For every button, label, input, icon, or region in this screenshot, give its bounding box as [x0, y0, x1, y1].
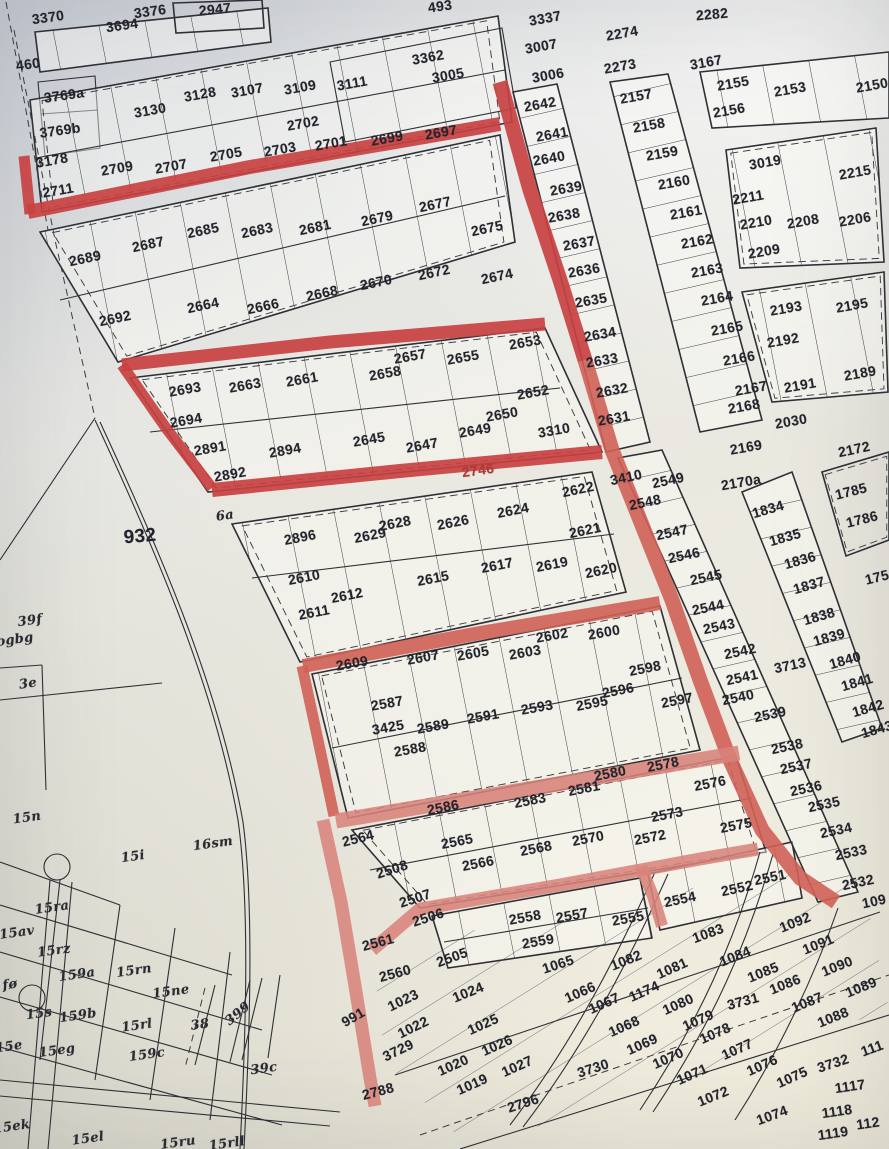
parcel-label-1839: 1839 — [811, 625, 847, 649]
parcel-label-1119: 1119 — [817, 1123, 850, 1143]
parcel-label-2636: 2636 — [567, 259, 602, 280]
parcel-label-2170a: 2170a — [720, 471, 763, 494]
parcel-label-2030: 2030 — [774, 410, 809, 431]
parcel-label-3130: 3130 — [133, 99, 168, 120]
parcel-label-2172: 2172 — [837, 438, 872, 460]
parcel-label-2505: 2505 — [434, 944, 470, 970]
parcel-label-2603: 2603 — [508, 641, 543, 662]
parcel-label-2639: 2639 — [549, 177, 584, 198]
parcel-label-2588: 2588 — [393, 738, 428, 759]
parcel-label-2615: 2615 — [416, 567, 451, 589]
parcel-label-3425: 3425 — [371, 716, 406, 737]
parcel-label-3007: 3007 — [524, 35, 559, 56]
parcel-label-2549: 2549 — [651, 469, 686, 491]
parcel-label-1077: 1077 — [719, 1035, 755, 1063]
parcel-label-1835: 1835 — [767, 525, 803, 549]
parcel-label-2557: 2557 — [555, 904, 590, 925]
parcel-label-1089: 1089 — [843, 974, 879, 1001]
parcel-label-1836: 1836 — [782, 548, 818, 572]
parcel-label-2160: 2160 — [657, 171, 692, 192]
parcel-label-2670: 2670 — [359, 271, 394, 293]
parcel-label-2578: 2578 — [646, 753, 681, 775]
parcel-label-2664: 2664 — [186, 294, 221, 316]
parcel-label-3178: 3178 — [35, 149, 70, 170]
parcel-label-1174: 1174 — [626, 977, 661, 1004]
parcel-label-2282: 2282 — [695, 5, 729, 24]
parcel-label-15rll: 15rll — [208, 1134, 246, 1149]
parcel-label-38: 38 — [190, 1016, 211, 1033]
parcel-label-1785: 1785 — [833, 479, 868, 502]
parcel-label-2652: 2652 — [516, 381, 551, 402]
parcel-label-2156: 2156 — [712, 99, 747, 120]
parcel-label-2634: 2634 — [583, 323, 618, 344]
parcel-label-15e: 15e — [0, 1038, 24, 1057]
parcel-label-2593: 2593 — [520, 696, 555, 717]
parcel-label-16sm: 16sm — [192, 834, 234, 854]
parcel-label-2274: 2274 — [605, 22, 640, 43]
parcel-label-2166: 2166 — [722, 347, 757, 368]
parcel-label-1786: 1786 — [844, 507, 879, 530]
parcel-label-2507: 2507 — [397, 885, 433, 910]
parcel-label-2573: 2573 — [650, 803, 685, 825]
parcel-label-2687: 2687 — [131, 233, 166, 255]
parcel-label-2677: 2677 — [418, 193, 453, 215]
parcel-label-2535: 2535 — [807, 793, 842, 815]
parcel-label-2575: 2575 — [719, 814, 754, 836]
parcel-label-2697: 2697 — [424, 121, 459, 142]
parcel-label-2619: 2619 — [535, 553, 570, 575]
parcel-label-2545: 2545 — [689, 566, 724, 588]
parcel-label-1084: 1084 — [717, 943, 753, 970]
parcel-label-159c: 159c — [128, 1045, 166, 1065]
parcel-label-3310: 3310 — [537, 419, 572, 440]
parcel-label-2150: 2150 — [855, 74, 889, 95]
parcel-label-15i: 15i — [120, 848, 146, 866]
parcel-label-1072: 1072 — [695, 1083, 731, 1110]
parcel-label-1838: 1838 — [801, 604, 837, 628]
parcel-label-2157: 2157 — [619, 85, 654, 106]
parcel-label-2896: 2896 — [283, 526, 318, 548]
parcel-label-2560: 2560 — [377, 961, 412, 985]
parcel-label-2508: 2508 — [374, 856, 410, 881]
parcel-label-2611: 2611 — [297, 601, 331, 623]
parcel-label-15n: 15n — [12, 809, 42, 828]
parcel-label-ogbg: ogbg — [0, 630, 34, 650]
parcel-label-1070: 1070 — [650, 1044, 686, 1072]
parcel-label-3731: 3731 — [725, 989, 760, 1013]
parcel-label-1091: 1091 — [800, 931, 836, 958]
parcel-label-1090: 1090 — [819, 953, 855, 980]
parcel-label-2164: 2164 — [700, 287, 735, 308]
parcel-label-2576: 2576 — [693, 772, 728, 794]
parcel-label-2191: 2191 — [783, 374, 818, 395]
parcel-label-15ra: 15ra — [34, 898, 70, 918]
parcel-label-2600: 2600 — [587, 621, 622, 642]
parcel-label-2589: 2589 — [416, 715, 451, 736]
parcel-label-399: 399 — [222, 999, 253, 1029]
parcel-label-2609: 2609 — [335, 652, 370, 673]
cadastral-map-photo[interactable]: 33703694337629474934603769a3769b31782711… — [0, 0, 889, 1149]
parcel-label-2891: 2891 — [193, 437, 228, 458]
parcel-label-2544: 2544 — [691, 596, 726, 618]
parcel-label-2694: 2694 — [169, 409, 204, 430]
parcel-label-2540: 2540 — [721, 686, 756, 708]
parcel-label-2586: 2586 — [426, 796, 461, 818]
parcel-label-1837: 1837 — [791, 573, 827, 597]
parcel-label-2657: 2657 — [393, 345, 428, 366]
parcel-label-2705: 2705 — [209, 143, 244, 164]
parcel-label-15rz: 15rz — [36, 941, 71, 961]
parcel-label-2561: 2561 — [360, 930, 395, 954]
parcel-label-1118: 1118 — [821, 1101, 854, 1121]
parcel-label-3410: 3410 — [609, 466, 644, 488]
parcel-label-460: 460 — [15, 54, 41, 73]
parcel-label-932: 932 — [123, 525, 157, 550]
parcel-label-2641: 2641 — [535, 123, 570, 144]
parcel-label-2607: 2607 — [406, 646, 441, 667]
parcel-label-2565: 2565 — [440, 830, 475, 852]
parcel-label-2663: 2663 — [228, 374, 263, 395]
parcel-label-2666: 2666 — [246, 295, 281, 317]
parcel-label-1024: 1024 — [450, 979, 486, 1006]
parcel-label-15ne: 15ne — [152, 982, 191, 1002]
parcel-label-2537: 2537 — [779, 755, 814, 777]
parcel-label-3370: 3370 — [31, 7, 65, 27]
parcel-label-2668: 2668 — [305, 282, 340, 304]
parcel-label-1843: 1843 — [859, 717, 889, 741]
parcel-label-1840: 1840 — [827, 648, 863, 672]
parcel-label-2506: 2506 — [410, 904, 446, 929]
parcel-label-3729: 3729 — [380, 1036, 416, 1065]
parcel-label-2215: 2215 — [838, 161, 873, 182]
parcel-label-15rl: 15rl — [121, 1016, 154, 1035]
parcel-label-991: 991 — [338, 1004, 367, 1030]
parcel-label-1081: 1081 — [654, 954, 690, 982]
parcel-label-2192: 2192 — [766, 329, 801, 350]
parcel-label-2558: 2558 — [508, 906, 543, 927]
parcel-label-3128: 3128 — [183, 83, 218, 104]
parcel-label-2699: 2699 — [370, 127, 405, 148]
parcel-label-1069: 1069 — [624, 1030, 660, 1058]
parcel-label-15s: 15s — [25, 1005, 53, 1024]
parcel-label-1071: 1071 — [674, 1060, 710, 1088]
parcel-label-2622: 2622 — [561, 478, 596, 500]
parcel-label-2566: 2566 — [461, 852, 496, 874]
parcel-label-2635: 2635 — [574, 289, 609, 310]
parcel-label-2583: 2583 — [513, 789, 548, 811]
parcel-label-2211: 2211 — [731, 186, 765, 207]
parcel-label-1117: 1117 — [834, 1076, 867, 1096]
parcel-label-1020: 1020 — [435, 1051, 471, 1079]
parcel-label-2597: 2597 — [660, 689, 695, 711]
parcel-label-2711: 2711 — [41, 179, 75, 200]
parcel-label-2892: 2892 — [213, 463, 248, 484]
parcel-label-1841: 1841 — [839, 670, 875, 694]
parcel-label-1834: 1834 — [750, 497, 786, 521]
parcel-label-2638: 2638 — [547, 204, 582, 225]
parcel-label-2642: 2642 — [523, 93, 558, 114]
parcel-label-2692: 2692 — [98, 307, 133, 329]
parcel-label-2543: 2543 — [702, 615, 737, 637]
parcel-label-2679: 2679 — [360, 207, 395, 229]
parcel-label-159a: 159a — [58, 965, 96, 985]
parcel-label-2541: 2541 — [725, 666, 760, 688]
parcel-label-1082: 1082 — [608, 947, 644, 974]
parcel-label-2564: 2564 — [340, 826, 375, 849]
parcel-label-2683: 2683 — [240, 219, 275, 241]
parcel-label-2539: 2539 — [753, 703, 788, 725]
parcel-label-2591: 2591 — [466, 705, 501, 726]
parcel-label-1023: 1023 — [385, 986, 421, 1015]
parcel-label-1842: 1842 — [850, 696, 886, 720]
parcel-label-112: 112 — [855, 1113, 880, 1132]
parcel-label-3732: 3732 — [815, 1050, 851, 1075]
parcel-label-2610: 2610 — [287, 566, 322, 588]
parcel-label-2621: 2621 — [568, 519, 603, 541]
parcel-label-fø: fø — [2, 977, 19, 994]
parcel-label-2587: 2587 — [370, 692, 405, 713]
parcel-label-2163: 2163 — [690, 259, 725, 280]
parcel-label-493: 493 — [427, 0, 453, 16]
parcel-label-109: 109 — [860, 891, 887, 912]
parcel-label-1022: 1022 — [395, 1013, 431, 1042]
parcel-label-2672: 2672 — [417, 261, 452, 283]
parcel-label-2709: 2709 — [100, 157, 135, 178]
parcel-label-2633: 2633 — [585, 349, 620, 370]
parcel-label-2159: 2159 — [645, 142, 680, 163]
parcel-label-2168: 2168 — [727, 395, 762, 416]
parcel-label-3006: 3006 — [531, 64, 566, 85]
parcel-label-3167: 3167 — [689, 51, 724, 72]
parcel-label-2536: 2536 — [789, 777, 824, 799]
parcel-label-15ru: 15ru — [159, 1133, 196, 1149]
parcel-label-2595: 2595 — [575, 692, 610, 714]
parcel-label-3e: 3e — [18, 675, 38, 692]
parcel-label-1075: 1075 — [774, 1063, 810, 1091]
parcel-label-2559: 2559 — [521, 930, 556, 951]
parcel-label-2681: 2681 — [298, 216, 333, 238]
parcel-label-2548: 2548 — [628, 491, 663, 513]
parcel-label-1019: 1019 — [454, 1070, 490, 1098]
parcel-label-2689: 2689 — [68, 247, 103, 269]
parcel-label-2631: 2631 — [597, 407, 632, 428]
parcel-label-2661: 2661 — [285, 368, 320, 389]
parcel-label-111: 111 — [859, 1037, 886, 1060]
parcel-label-15eg: 15eg — [38, 1041, 76, 1061]
parcel-label-2572: 2572 — [633, 826, 668, 848]
parcel-labels-layer: 33703694337629474934603769a3769b31782711… — [0, 0, 889, 1149]
parcel-label-2542: 2542 — [723, 640, 758, 662]
parcel-label-1026: 1026 — [479, 1031, 515, 1059]
parcel-label-2195: 2195 — [835, 294, 870, 315]
parcel-label-2568: 2568 — [519, 837, 554, 859]
parcel-label-2532: 2532 — [841, 871, 876, 893]
parcel-label-2570: 2570 — [571, 827, 606, 849]
parcel-label-3337: 3337 — [528, 7, 563, 28]
parcel-label-2153: 2153 — [773, 78, 808, 99]
parcel-label-3376: 3376 — [133, 1, 167, 21]
parcel-label-2645: 2645 — [352, 428, 387, 449]
parcel-label-2551: 2551 — [753, 866, 788, 888]
parcel-label-15rn: 15rn — [115, 961, 152, 981]
parcel-label-2555: 2555 — [611, 907, 646, 928]
parcel-label-2189: 2189 — [843, 362, 878, 383]
parcel-label-2162: 2162 — [680, 230, 715, 251]
parcel-label-1092: 1092 — [777, 909, 813, 936]
parcel-label-3730: 3730 — [575, 1055, 611, 1080]
parcel-label-1074: 1074 — [754, 1102, 790, 1128]
parcel-label-3005: 3005 — [431, 64, 466, 85]
parcel-label-2155: 2155 — [716, 72, 751, 93]
parcel-label-2788: 2788 — [360, 1079, 395, 1103]
parcel-label-2624: 2624 — [496, 499, 531, 521]
parcel-label-2612: 2612 — [330, 584, 365, 606]
parcel-label-2209: 2209 — [747, 240, 782, 261]
parcel-label-2208: 2208 — [786, 210, 821, 231]
parcel-label-2674: 2674 — [480, 265, 515, 287]
parcel-label-2169: 2169 — [729, 436, 764, 457]
parcel-label-2552: 2552 — [720, 877, 755, 899]
parcel-label-1065: 1065 — [540, 951, 576, 976]
parcel-label-2273: 2273 — [603, 55, 638, 76]
parcel-label-175: 175 — [863, 566, 889, 587]
parcel-label-3107: 3107 — [230, 79, 265, 100]
parcel-label-2161: 2161 — [669, 201, 704, 222]
parcel-label-2617: 2617 — [480, 554, 515, 576]
parcel-label-39f: 39f — [17, 612, 43, 630]
parcel-label-1083: 1083 — [690, 920, 726, 946]
parcel-label-15av: 15av — [0, 923, 36, 943]
parcel-label-2547: 2547 — [655, 521, 690, 543]
parcel-label-3362: 3362 — [411, 46, 446, 67]
parcel-label-1087: 1087 — [789, 989, 825, 1016]
parcel-label-2206: 2206 — [838, 208, 873, 229]
parcel-label-2598: 2598 — [628, 657, 663, 679]
parcel-label-2193: 2193 — [769, 297, 804, 318]
parcel-label-1068: 1068 — [606, 1012, 642, 1040]
parcel-label-2701: 2701 — [314, 132, 349, 153]
parcel-label-3019: 3019 — [748, 151, 783, 172]
parcel-label-6a: 6a — [215, 507, 235, 524]
parcel-label-2703: 2703 — [263, 138, 298, 159]
parcel-label-2626: 2626 — [436, 511, 471, 533]
parcel-label-2640: 2640 — [532, 147, 567, 168]
parcel-label-2546: 2546 — [667, 544, 702, 566]
parcel-label-2534: 2534 — [819, 819, 854, 841]
parcel-label-2533: 2533 — [834, 841, 869, 863]
parcel-label-2796: 2796 — [505, 1090, 541, 1115]
parcel-label-1025: 1025 — [465, 1010, 501, 1038]
parcel-label-2165: 2165 — [710, 317, 745, 338]
parcel-label-2894: 2894 — [268, 439, 303, 460]
parcel-label-3769a: 3769a — [43, 84, 85, 105]
parcel-label-15ek: 15ek — [0, 1117, 31, 1137]
parcel-label-2693: 2693 — [168, 378, 203, 399]
parcel-label-3109: 3109 — [283, 76, 318, 97]
parcel-label-15el: 15el — [71, 1129, 105, 1148]
parcel-label-39c: 39c — [250, 1060, 279, 1079]
parcel-label-2746: 2746 — [461, 460, 495, 480]
parcel-label-2158: 2158 — [632, 114, 667, 135]
parcel-label-2702: 2702 — [286, 112, 321, 133]
parcel-label-2620: 2620 — [584, 559, 619, 581]
parcel-label-2637: 2637 — [562, 232, 597, 253]
parcel-label-2538: 2538 — [770, 735, 805, 757]
parcel-label-2685: 2685 — [186, 219, 221, 241]
parcel-label-2605: 2605 — [456, 642, 491, 663]
parcel-label-2675: 2675 — [470, 217, 505, 239]
parcel-label-3713: 3713 — [773, 654, 808, 676]
parcel-label-2632: 2632 — [595, 379, 630, 400]
parcel-label-1088: 1088 — [815, 1004, 851, 1031]
parcel-label-2629: 2629 — [353, 524, 388, 546]
parcel-label-2210: 2210 — [739, 211, 774, 232]
parcel-label-2581: 2581 — [567, 777, 602, 799]
parcel-label-3769b: 3769b — [38, 119, 81, 141]
parcel-label-3111: 3111 — [335, 72, 368, 93]
parcel-label-2707: 2707 — [154, 155, 189, 176]
parcel-label-2653: 2653 — [508, 331, 543, 352]
parcel-label-2947: 2947 — [198, 0, 232, 19]
parcel-label-159b: 159b — [58, 1006, 97, 1026]
parcel-label-2649: 2649 — [458, 419, 493, 440]
parcel-label-2554: 2554 — [663, 888, 698, 910]
parcel-label-2655: 2655 — [446, 346, 481, 367]
parcel-label-1027: 1027 — [499, 1052, 535, 1080]
parcel-label-2647: 2647 — [405, 434, 440, 455]
